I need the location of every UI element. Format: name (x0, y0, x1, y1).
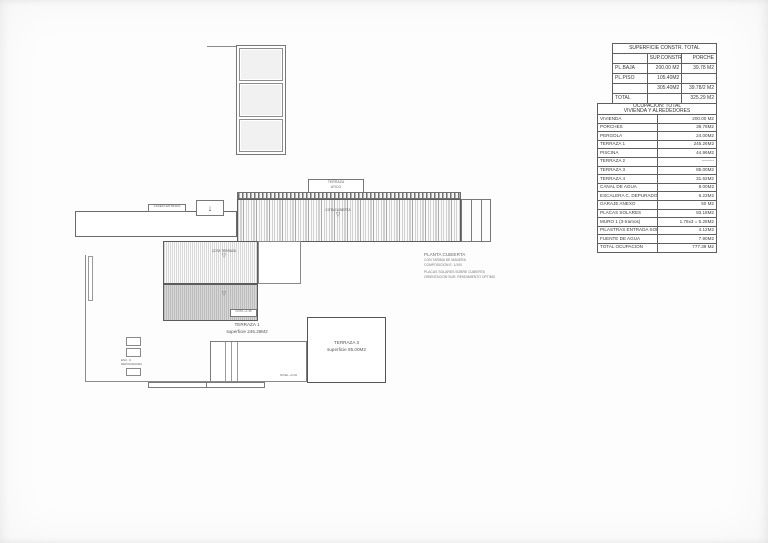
construction-area-table: SUPERFICIE CONSTR. TOTALSUP.CONSTR.PORCH… (612, 43, 717, 104)
garage-panel (239, 48, 283, 81)
elevation-triangle-icon: ▽ (318, 213, 358, 219)
table-title-row: OCUPACION: TOTALVIVIENDA Y ALREDEDORES (598, 104, 717, 115)
pump-cell (126, 368, 141, 376)
table-row: CANAL DE AGUA8.00M2 (598, 183, 717, 192)
table-cell: TERRAZA 4 (598, 175, 658, 184)
table-title: SUPERFICIE CONSTR. TOTAL (613, 44, 717, 54)
table-cell: FUENTE DE AGUA (598, 235, 658, 244)
elevation-triangle-icon: ▽ (204, 254, 244, 260)
table-cell: PISCINA (598, 149, 658, 158)
table-cell: PERGOLA (598, 132, 658, 141)
table-row: TERRAZA 431.62M2 (598, 175, 717, 184)
table-cell: PORCHE (682, 54, 717, 64)
table-row: PLACAS SOLARES93.18M2 (598, 209, 717, 218)
table-cell: 1.76x3 = 5.28M2 (657, 218, 717, 227)
notes-line: ORIENTACION SUR. RENDIMIENTO OPTIMO (424, 275, 514, 280)
table-cell: TERRAZA 3 (598, 166, 658, 175)
arrow-down-icon: ↓ (208, 203, 213, 213)
plan-notes: PLANTA CUBIERTA CON TARIMA DE MADERA COM… (424, 252, 514, 279)
table-cell: PLACAS SOLARES (598, 209, 658, 218)
scale-bar-tick (206, 383, 207, 387)
table-row: 305.40M239.78/2 M2 (613, 84, 717, 94)
table-cell: 7.90M2 (657, 235, 717, 244)
table-cell: PL.PISO (613, 74, 648, 84)
entry-arrow-box: ↓ (196, 200, 224, 216)
table-cell: PL.BAJA (613, 64, 648, 74)
table-cell: 777.39 M2 (657, 243, 717, 252)
roof-edge-wall-strip (237, 192, 461, 199)
table-cell: 93.18M2 (657, 209, 717, 218)
terraza3-area: TERRAZA 3 superficie 85.00M2 (307, 317, 386, 383)
table-row: PL.BAJA200.00 M239.78 M2 (613, 64, 717, 74)
skylight-divider (481, 200, 482, 241)
table-row: TERRAZA 2-------- (598, 157, 717, 166)
plot-boundary-left (85, 255, 86, 381)
table-cell: 44.96M2 (657, 149, 717, 158)
table-row: PL.PISO105.40M2 (613, 74, 717, 84)
roof-label-box: TERRAZA ATICO (308, 179, 364, 193)
table-cell: PILASTRAS ENTRADA SOL.AR (598, 226, 658, 235)
table-cell: TOTAL OCUPACION (598, 243, 658, 252)
step-line (237, 342, 238, 381)
table-cell: 200.00 M2 (647, 64, 682, 74)
table-row: VIVIENDA200.00 M2 (598, 115, 717, 124)
level-note: NIVEL +0.00 (280, 374, 297, 378)
table-title: OCUPACION: TOTALVIVIENDA Y ALREDEDORES (598, 104, 717, 115)
table-cell: TERRAZA 2 (598, 157, 658, 166)
table-cell: MURO 1 (3-tramos) (598, 218, 658, 227)
table-cell (682, 74, 717, 84)
lower-roof-elevation-marker: COTA TERRAZA ▽ (204, 250, 244, 259)
table-row: PORCHES39.78M2 (598, 123, 717, 132)
table-row: TOTAL325.29 M2 (613, 94, 717, 104)
table-cell (647, 94, 682, 104)
table-row: PILASTRAS ENTRADA SOL.AR4.12M2 (598, 226, 717, 235)
terraza3-caption-line1: TERRAZA 3 (308, 340, 385, 347)
table-cell: 39.78/2 M2 (682, 84, 717, 94)
terraza1-caption: TERRAZA 1 superficie 245.26M2 (202, 322, 292, 335)
occupation-area-table: OCUPACION: TOTALVIVIENDA Y ALREDEDORESVI… (597, 103, 717, 253)
main-roof-deck (237, 199, 461, 242)
roof-label-line2: ATICO (309, 185, 363, 190)
table-cell: GARAJE ANEXO (598, 200, 658, 209)
table-cell: CANAL DE AGUA (598, 183, 658, 192)
table-row: PISCINA44.96M2 (598, 149, 717, 158)
table-cell: 50 M2 (657, 200, 717, 209)
pump-note: ESC. C. DEPURADORA (121, 359, 159, 367)
table-cell: 6.23M2 (657, 192, 717, 201)
table-row: FUENTE DE AGUA7.90M2 (598, 235, 717, 244)
pump-note-line2: DEPURADORA (121, 363, 159, 367)
table-cell: SUP.CONSTR. (647, 54, 682, 64)
table-cell: 325.29 M2 (682, 94, 717, 104)
table-row: GARAJE ANEXO50 M2 (598, 200, 717, 209)
table-cell: TOTAL (613, 94, 648, 104)
roof-side-court (258, 241, 301, 284)
skylight-divider (471, 200, 472, 241)
elevation-triangle-icon: ▽ (216, 292, 232, 298)
garage-panel (239, 119, 283, 152)
table-cell: 24.00M2 (657, 132, 717, 141)
table-cell: 85.00M2 (657, 166, 717, 175)
pump-cell (126, 337, 141, 346)
table-cell: 31.62M2 (657, 175, 717, 184)
table-cell: PORCHES (598, 123, 658, 132)
garage-annex-plan (236, 45, 286, 155)
table-cell: 39.78M2 (657, 123, 717, 132)
table-cell: 39.78 M2 (682, 64, 717, 74)
entry-label-box: CASETA ENTRADA (148, 204, 186, 212)
terraza3-caption-line2: superficie 85.00M2 (308, 347, 385, 354)
drawing-sheet: TERRAZA ATICO COTA CUBIERTA ▽ CASETA ENT… (0, 0, 768, 543)
table-cell (613, 84, 648, 94)
annex-leader-line (207, 46, 236, 47)
table-cell: 200.00 M2 (657, 115, 717, 124)
table-cell: 8.00M2 (657, 183, 717, 192)
table-row: ESCALERA C. DEPURADORA6.23M2 (598, 192, 717, 201)
terraza1-tag: COTA +1.45 (231, 310, 256, 314)
step-line (231, 342, 232, 381)
table-cell (613, 54, 648, 64)
table-cell: ESCALERA C. DEPURADORA (598, 192, 658, 201)
table-cell: VIVIENDA (598, 115, 658, 124)
boundary-wall (88, 256, 93, 301)
table-cell: TERRAZA 1 (598, 140, 658, 149)
table-cell: 105.40M2 (647, 74, 682, 84)
terraza1-tag-box: COTA +1.45 (230, 309, 257, 317)
table-cell: 245.26M2 (657, 140, 717, 149)
table-row: TOTAL OCUPACION777.39 M2 (598, 243, 717, 252)
table-row: TERRAZA 385.00M2 (598, 166, 717, 175)
skylight-block (461, 199, 491, 242)
roof-elevation-marker: COTA CUBIERTA ▽ (318, 209, 358, 218)
entry-label: CASETA ENTRADA (149, 205, 185, 209)
table-cell: -------- (657, 157, 717, 166)
terraza1-elevation-marker: ▽ (216, 292, 232, 298)
table-row: TERRAZA 1245.26M2 (598, 140, 717, 149)
table-cell: 305.40M2 (647, 84, 682, 94)
table-title-row: SUPERFICIE CONSTR. TOTAL (613, 44, 717, 54)
lower-roof-deck (163, 241, 258, 284)
table-cell: 4.12M2 (657, 226, 717, 235)
garage-panel (239, 83, 283, 116)
table-row: PERGOLA24.00M2 (598, 132, 717, 141)
scale-bar (148, 382, 265, 388)
terraza1-caption-line2: superficie 245.26M2 (202, 329, 292, 336)
table-row: SUP.CONSTR.PORCHE (613, 54, 717, 64)
terraza1-caption-line1: TERRAZA 1 (202, 322, 292, 329)
table-row: MURO 1 (3-tramos)1.76x3 = 5.28M2 (598, 218, 717, 227)
step-line (225, 342, 226, 381)
terraza3-caption: TERRAZA 3 superficie 85.00M2 (308, 340, 385, 353)
pump-cell (126, 348, 141, 357)
